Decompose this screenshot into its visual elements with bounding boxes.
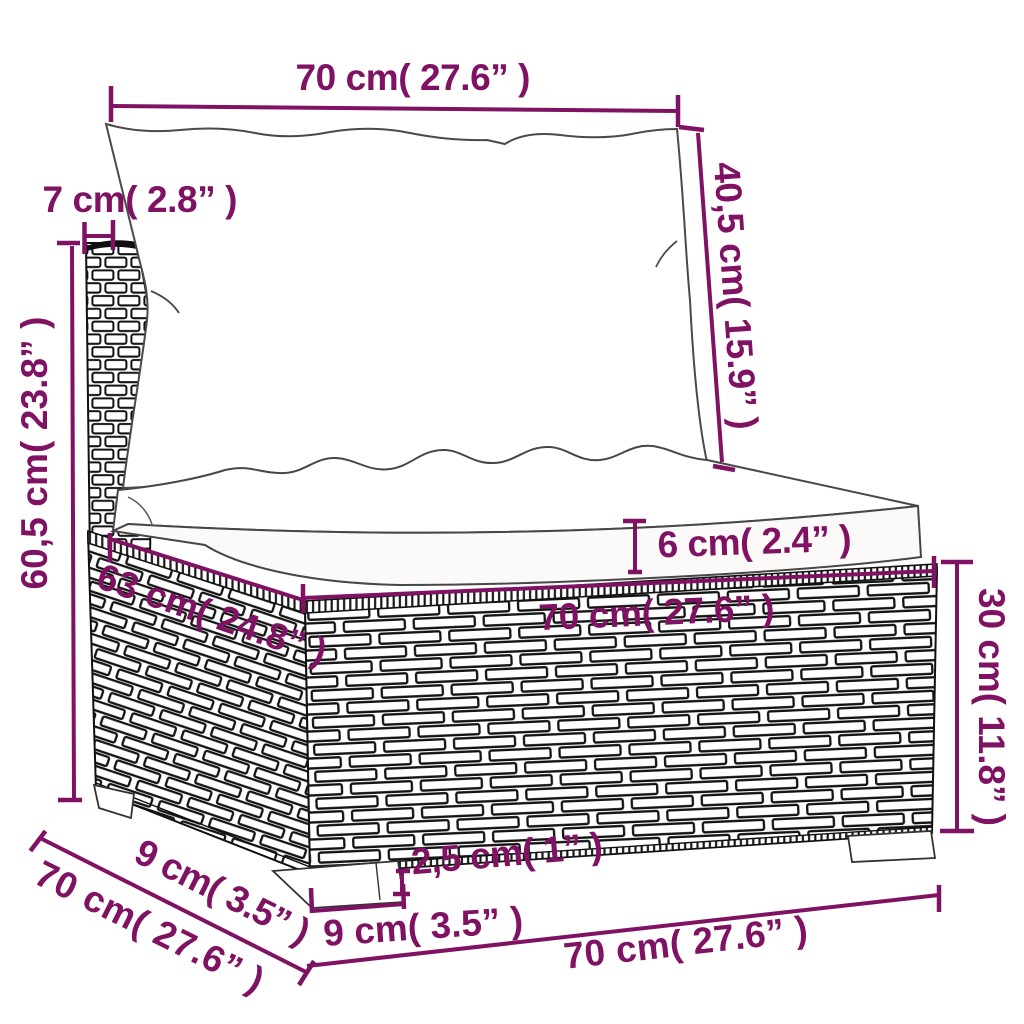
svg-text:30 cm( 11.8” ): 30 cm( 11.8” ): [971, 588, 1012, 826]
svg-text:70 cm( 27.6” ): 70 cm( 27.6” ): [562, 908, 810, 976]
svg-text:70 cm( 27.6” ): 70 cm( 27.6” ): [296, 57, 531, 98]
svg-text:7 cm( 2.8” ): 7 cm( 2.8” ): [43, 179, 238, 220]
svg-text:60,5 cm( 23.8” ): 60,5 cm( 23.8” ): [14, 317, 55, 590]
svg-text:6 cm( 2.4” ): 6 cm( 2.4” ): [657, 518, 852, 566]
